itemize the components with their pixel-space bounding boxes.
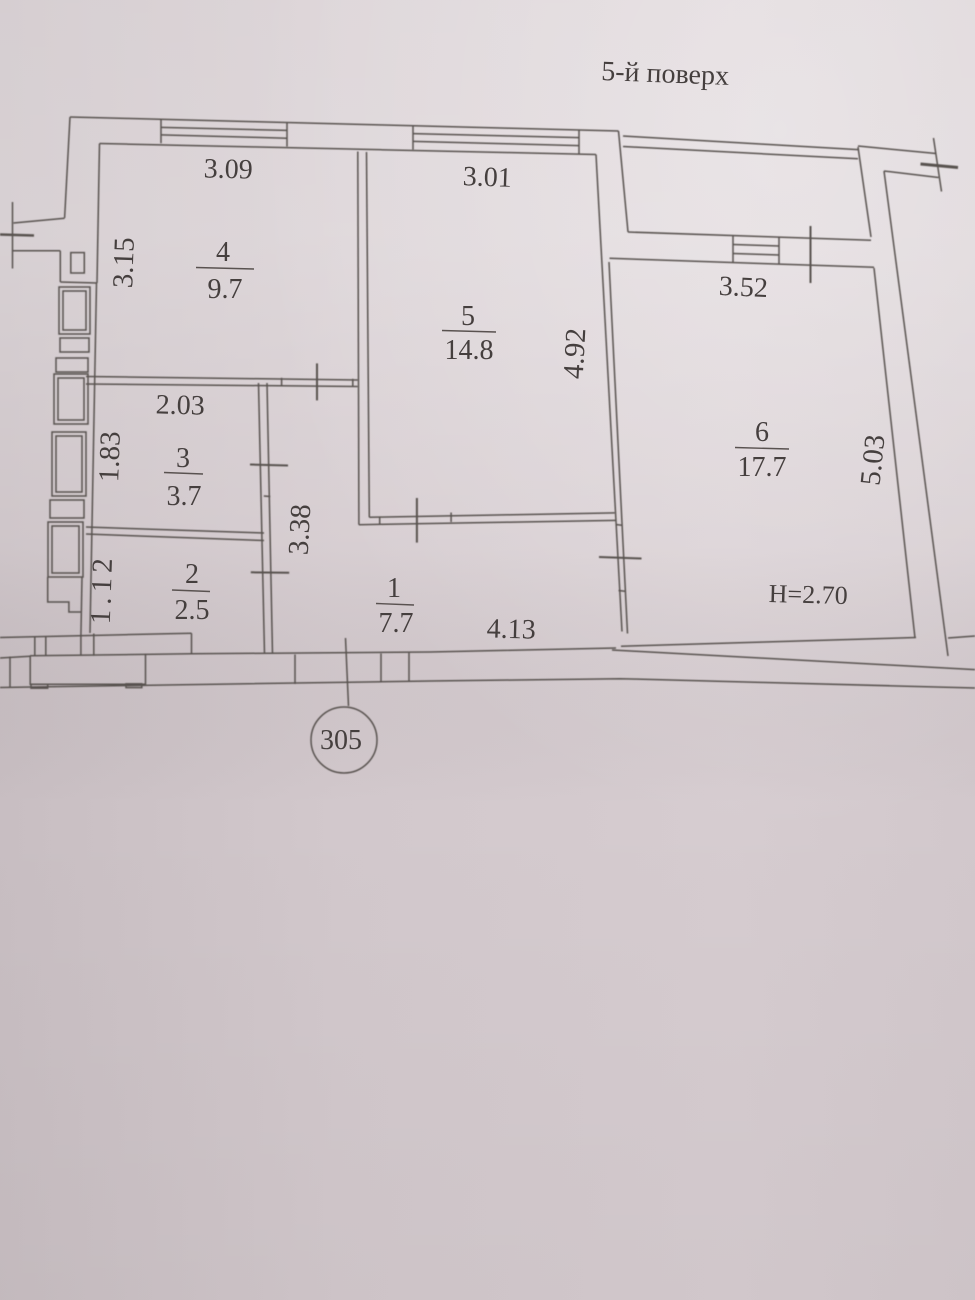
svg-text:4.13: 4.13 xyxy=(486,613,536,645)
svg-text:3.15: 3.15 xyxy=(107,237,141,289)
svg-text:4.92: 4.92 xyxy=(558,327,593,379)
svg-text:5: 5 xyxy=(461,301,475,332)
svg-text:1: 1 xyxy=(387,573,401,604)
svg-text:17.7: 17.7 xyxy=(738,452,787,483)
svg-text:3.52: 3.52 xyxy=(718,271,768,304)
svg-text:14.8: 14.8 xyxy=(445,335,494,366)
svg-text:1.12: 1.12 xyxy=(85,553,119,625)
svg-text:H=2.70: H=2.70 xyxy=(768,579,848,610)
svg-text:5-й поверх: 5-й поверх xyxy=(601,56,730,92)
svg-text:7.7: 7.7 xyxy=(379,608,414,639)
svg-text:3.09: 3.09 xyxy=(203,153,253,185)
svg-text:2: 2 xyxy=(185,559,199,590)
svg-text:305: 305 xyxy=(320,725,362,756)
svg-text:1.83: 1.83 xyxy=(93,431,127,483)
svg-text:3.01: 3.01 xyxy=(462,161,512,194)
svg-text:2.03: 2.03 xyxy=(155,389,205,421)
svg-text:6: 6 xyxy=(755,417,769,448)
svg-text:4: 4 xyxy=(216,237,230,268)
svg-text:3: 3 xyxy=(176,443,190,474)
svg-text:5.03: 5.03 xyxy=(854,433,891,487)
svg-text:2.5: 2.5 xyxy=(175,595,210,626)
svg-text:3.7: 3.7 xyxy=(167,481,202,512)
svg-text:9.7: 9.7 xyxy=(208,274,243,305)
svg-text:3.38: 3.38 xyxy=(283,503,318,555)
